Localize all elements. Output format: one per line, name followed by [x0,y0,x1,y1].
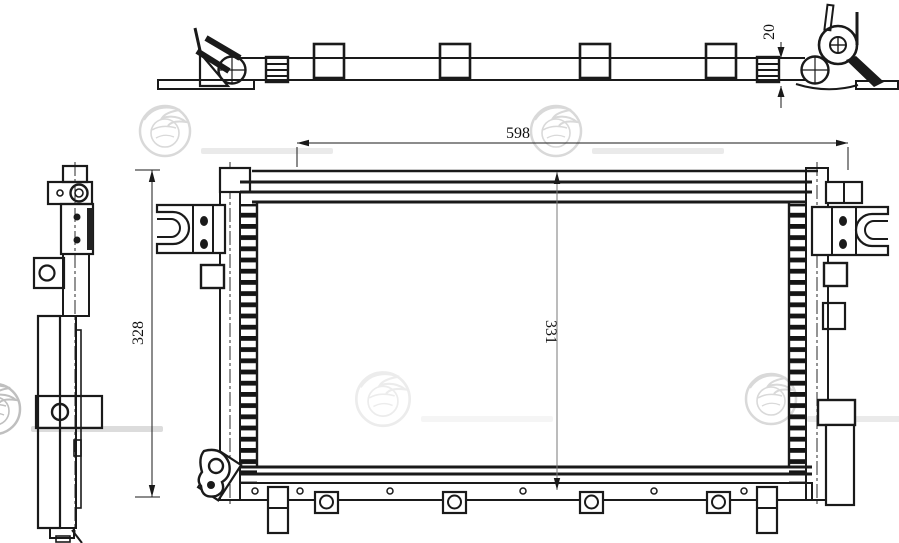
top-view: 20 [158,5,898,108]
side-bracket-lower [36,396,102,428]
bottom-rail [240,483,812,533]
hanging-pin [757,487,777,533]
pipe-connector-right [757,57,779,82]
top-header [240,171,818,202]
pipe-fitting [198,450,241,500]
dimension-pipe-offset-label: 20 [761,24,778,40]
side-bracket-upper [34,258,64,288]
dimension-overall-width: 598 [297,125,848,170]
fins-left [240,204,257,484]
mount-tab [315,492,338,513]
receiver-drier [818,400,855,505]
core [257,202,789,467]
dimension-pipe-offset: 20 [761,24,785,108]
hanging-pin [268,487,288,533]
bottom-header [240,467,812,474]
dimension-core-height-label: 331 [542,320,559,344]
bracket-right [812,207,888,255]
front-view [157,162,888,533]
dimension-side-height: 328 [130,170,160,497]
dimension-side-height-label: 328 [130,321,147,345]
pipe-connector-left [266,57,288,82]
mount-tab [580,492,603,513]
bracket-left [157,205,225,253]
mount-tab [443,492,466,513]
technical-drawing-page: LUZAR LUZAR LUZAR [0,0,899,543]
condenser-drawing: 20 [0,0,899,543]
side-view [34,162,102,543]
mount-tab [707,492,730,513]
dimension-overall-width-label: 598 [506,125,530,142]
fins-right [789,204,806,484]
top-right-fitting [796,5,898,90]
dimension-core-height: 331 [542,172,560,490]
top-left-bracket [158,28,254,89]
